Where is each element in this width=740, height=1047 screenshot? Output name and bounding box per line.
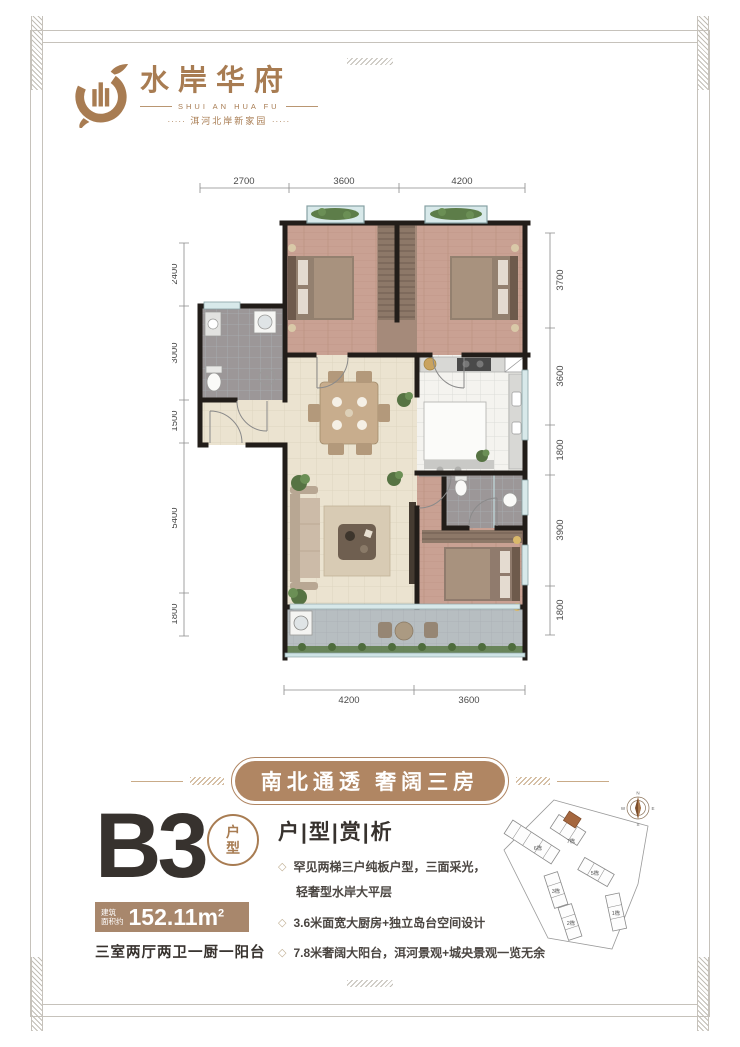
svg-text:2400: 2400 (172, 263, 180, 284)
floor-plan: 2700 3600 4200 2400 3000 1500 5400 1800 … (172, 170, 567, 715)
brand-pinyin: SHUI AN HUA FU (178, 102, 280, 111)
area-bar: 建筑 面积约 152.11m2 (95, 902, 249, 932)
banner-text: 南北通透 奢阔三房 (261, 770, 479, 794)
svg-text:2700: 2700 (233, 176, 254, 187)
unit-info: B3 户 型 建筑 面积约 152.11m2 三室两厅两卫一厨一阳台 (95, 806, 265, 962)
svg-text:3栋: 3栋 (552, 887, 561, 895)
unit-code: B3 (95, 795, 205, 897)
pinyin-left-line (140, 106, 172, 107)
svg-text:3000: 3000 (172, 342, 180, 363)
svg-text:4200: 4200 (338, 695, 359, 706)
brand-logo: 水岸华府 SHUI AN HUA FU ····· 洱河北岸新家园 ····· (72, 56, 318, 128)
diamond-icon: ◇ (278, 915, 286, 932)
banner-capsule: 南北通透 奢阔三房 (231, 757, 509, 805)
pinyin-right-line (286, 106, 318, 107)
svg-text:1800: 1800 (172, 603, 180, 624)
svg-text:1800: 1800 (555, 439, 566, 460)
diamond-icon: ◇ (278, 945, 286, 962)
svg-text:3600: 3600 (555, 365, 566, 386)
brand-name: 水岸华府 (140, 57, 318, 99)
svg-text:5栋: 5栋 (591, 869, 600, 877)
svg-text:5400: 5400 (172, 507, 180, 528)
svg-text:3600: 3600 (458, 695, 479, 706)
unit-type-badge: 户 型 (207, 814, 259, 866)
svg-text:S: S (636, 822, 639, 827)
svg-text:1栋: 1栋 (612, 909, 621, 917)
svg-text:3900: 3900 (555, 519, 566, 540)
frame-corner-ornament (697, 957, 709, 1031)
brand-tagline: ····· 洱河北岸新家园 ····· (140, 114, 318, 127)
frame-top-ornament (347, 58, 393, 65)
svg-text:4200: 4200 (451, 176, 472, 187)
frame-corner-ornament (31, 16, 43, 90)
svg-text:1800: 1800 (555, 599, 566, 620)
site-buildings (504, 815, 626, 941)
svg-text:3700: 3700 (555, 269, 566, 290)
banner-right-line (557, 781, 609, 782)
rooms-description: 三室两厅两卫一厨一阳台 (95, 941, 265, 962)
banner-left-ornament (190, 777, 224, 785)
banner-right-ornament (516, 777, 550, 785)
svg-text:3600: 3600 (333, 176, 354, 187)
brand-pinyin-row: SHUI AN HUA FU (140, 102, 318, 111)
frame-corner-ornament (697, 16, 709, 90)
site-plan: 6栋 7栋 5栋 3栋 2栋 1栋 N E S W (496, 786, 666, 961)
diamond-icon: ◇ (278, 859, 286, 876)
area-label: 建筑 面积约 (101, 908, 124, 926)
area-value: 152.11m2 (129, 904, 225, 931)
svg-text:E: E (651, 806, 654, 811)
banner-left-line (131, 781, 183, 782)
brochure-page: 水岸华府 SHUI AN HUA FU ····· 洱河北岸新家园 ····· (0, 0, 740, 1047)
svg-text:W: W (621, 806, 626, 811)
svg-text:1500: 1500 (172, 410, 180, 431)
frame-bottom-ornament (347, 980, 393, 987)
svg-text:2栋: 2栋 (567, 919, 576, 927)
frame-corner-ornament (31, 957, 43, 1031)
svg-text:7栋: 7栋 (567, 837, 576, 845)
compass-icon: N E S W (621, 791, 655, 828)
svg-text:6栋: 6栋 (534, 844, 543, 852)
svg-text:N: N (636, 791, 639, 796)
phoenix-logo-icon (72, 56, 130, 128)
